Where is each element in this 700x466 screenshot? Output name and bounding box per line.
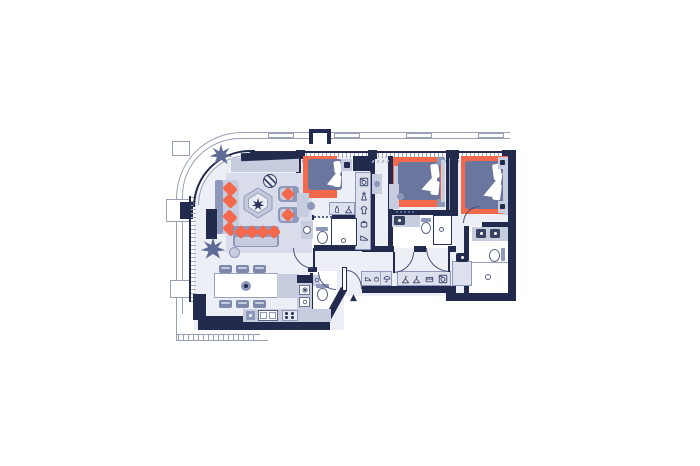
master-toilet-bowl: [489, 249, 500, 262]
facade-top-line-1: [266, 132, 510, 133]
plant-icon: [199, 236, 227, 264]
facade-tab-4: [478, 133, 504, 138]
dining-centerpiece-dot: [244, 284, 248, 288]
side-console: [206, 209, 217, 239]
bedroom2-pillow: [430, 181, 439, 196]
facade-tab-3: [406, 133, 432, 138]
shoes-icon: [363, 274, 372, 283]
hall-dresser: [452, 261, 472, 286]
bedroom1-nightstand-lamp: [344, 162, 350, 168]
dining-chair: [219, 265, 232, 273]
facade-bottom-line-2: [176, 340, 268, 341]
umbrella-icon: [382, 273, 391, 284]
bath1-threshold: [314, 216, 332, 220]
bedroom2-headboard: [441, 160, 445, 202]
round-side-table: [229, 247, 240, 258]
hob-burner: [291, 312, 294, 315]
bath1-shower-drain: [341, 238, 346, 243]
bath2-threshold: [396, 211, 414, 215]
facade-bay-top: [172, 141, 190, 156]
tray-table: [263, 174, 277, 188]
master-sink: [490, 229, 500, 238]
hanger-icon: [343, 204, 353, 214]
oven-icon: [299, 297, 310, 307]
dining-chair: [236, 265, 249, 273]
facade-tab-2: [334, 133, 360, 138]
master-nightstand-lamp: [500, 160, 505, 165]
facade-top-line-2: [262, 138, 510, 139]
master-sink: [476, 229, 486, 238]
dining-chair: [253, 300, 266, 308]
fridge-top: [297, 275, 312, 283]
corridor-console-stool: [374, 181, 380, 187]
bedroom2-desk-chair: [397, 193, 404, 200]
kitchen-island: [277, 274, 299, 298]
step-block: [446, 286, 456, 301]
bathroom2-door-leaf: [393, 252, 395, 273]
bath2-toilet-bowl: [421, 222, 431, 234]
hob-burner: [285, 312, 288, 315]
bedroom1-door-leaf: [313, 248, 315, 269]
facade-tab-1: [268, 133, 294, 138]
bedroom2-wardrobe: [446, 156, 454, 212]
hob-burner: [291, 316, 294, 319]
west-window-wall: [189, 196, 196, 302]
bath1-toilet-bowl: [317, 231, 328, 244]
kitchen-sink-basin-r: [269, 312, 276, 319]
hob-burner: [285, 316, 288, 319]
snowflake-icon: [299, 285, 310, 295]
bag-icon: [372, 274, 380, 283]
entrance-marker: ▲: [350, 294, 357, 303]
shoe-cabinet-divider: [380, 271, 381, 286]
bedroom1-pillow: [333, 175, 341, 188]
master-shower-drain: [485, 274, 491, 280]
washing-machine-icon: [437, 273, 448, 284]
bedroom1-wardrobe: [353, 156, 371, 171]
coffee-table: [241, 186, 275, 220]
bath2-sink: [394, 216, 405, 225]
facade-pillar: [309, 129, 331, 144]
kitchen-sink-basin-l: [260, 312, 267, 319]
pot-lid-dot: [461, 256, 464, 259]
shoes-icon: [358, 232, 369, 243]
master-nightstand-lamp: [500, 204, 505, 209]
shirt-icon: [358, 204, 369, 215]
master-shower-glass: [469, 262, 508, 263]
bedroom2-pillow: [430, 164, 440, 179]
hallway-north-wall-b: [414, 246, 426, 252]
facade-bottom-ticks: [178, 335, 258, 340]
floor-plan-canvas: ▲: [0, 0, 700, 466]
dining-chair: [253, 265, 266, 273]
facade-bay-left-2: [170, 280, 190, 298]
bedroom2-wardrobe-slat: [449, 158, 450, 210]
master-toilet-tank: [501, 248, 505, 261]
bag-icon: [358, 218, 369, 229]
bottle-icon: [332, 204, 341, 214]
wc-toilet-bowl: [317, 288, 328, 301]
hanger-icon: [400, 274, 410, 284]
southeast-wall: [452, 293, 516, 301]
bath2-shower-drain: [439, 227, 444, 232]
bedroom1-desk-chair: [307, 202, 315, 210]
dining-chair: [236, 300, 249, 308]
counter-appliance-dot: [249, 314, 252, 317]
corridor-door-leaf: [448, 248, 450, 272]
dining-chair: [219, 300, 232, 308]
hallway-south-wall: [362, 286, 454, 293]
bath1-basin: [303, 226, 311, 234]
washing-machine-icon: [358, 176, 369, 187]
hanger-icon: [411, 274, 421, 284]
southwest-corner-block: [193, 294, 206, 320]
storage-box-icon: [423, 274, 435, 284]
dress-icon: [358, 190, 369, 201]
